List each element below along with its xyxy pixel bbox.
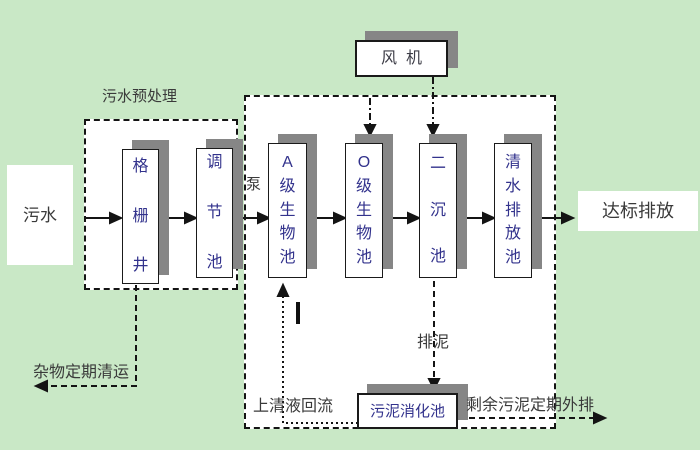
tank-char: 二 — [430, 156, 446, 172]
tank-char: A — [282, 155, 293, 171]
label-sludge-drain: 排泥 — [417, 335, 449, 351]
tank-char: 池 — [206, 255, 222, 271]
node-grid-well: 格栅井 — [122, 149, 159, 284]
node-fan: 风机 — [355, 40, 448, 77]
tank-char: 池 — [279, 250, 295, 266]
node-digester: 污泥消化池 — [357, 393, 458, 429]
node-tank-o: O级生物池 — [345, 143, 383, 278]
node-tank-a: A级生物池 — [268, 143, 307, 278]
debris-arrowhead — [36, 381, 47, 391]
tank-char: 级 — [279, 179, 295, 195]
tank-char: 清 — [505, 155, 521, 171]
excess-sludge-arrowhead — [594, 413, 605, 423]
tank-char: 生 — [279, 203, 295, 219]
tank-char: 排 — [505, 203, 521, 219]
node-grid-well-label: 格栅井 — [122, 149, 159, 284]
tank-char: 沉 — [430, 203, 446, 219]
node-regulating-tank-label: 调节池 — [196, 148, 233, 278]
node-influent-label: 污水 — [23, 207, 57, 224]
tank-char: 栅 — [132, 209, 148, 225]
node-tank-o-label: O级生物池 — [345, 143, 383, 278]
label-debris-removal: 杂物定期清运 — [33, 365, 129, 381]
tank-char: 物 — [356, 226, 372, 242]
tank-char: 水 — [505, 179, 521, 195]
tank-char: 节 — [206, 205, 222, 221]
node-discharge: 达标排放 — [578, 191, 698, 231]
node-clearwater-tank: 清水排放池 — [494, 143, 532, 278]
node-secondary-clarifier-label: 二沉池 — [419, 143, 457, 278]
tank-char: 生 — [356, 203, 372, 219]
tank-char: 格 — [132, 159, 148, 175]
caret-mark — [296, 302, 300, 324]
node-clearwater-tank-label: 清水排放池 — [494, 143, 532, 278]
node-tank-a-label: A级生物池 — [268, 143, 307, 278]
tank-char: 池 — [356, 250, 372, 266]
node-influent: 污水 — [7, 165, 73, 265]
node-secondary-clarifier: 二沉池 — [419, 143, 457, 278]
label-pretreatment: 污水预处理 — [102, 89, 177, 104]
tank-char: 池 — [505, 250, 521, 266]
node-digester-label: 污泥消化池 — [357, 393, 458, 429]
tank-char: 物 — [279, 226, 295, 242]
tank-char: 井 — [132, 258, 148, 274]
label-pump: 泵 — [246, 177, 261, 192]
tank-char: O — [358, 155, 370, 171]
diagram-canvas: 污水 达标排放 风机 格栅井 调节池 A级生物池 O级生物池 二沉池 清水排放池… — [0, 0, 700, 450]
tank-char: 级 — [356, 179, 372, 195]
tank-char: 调 — [206, 155, 222, 171]
node-discharge-label: 达标排放 — [602, 202, 674, 220]
node-fan-label: 风机 — [355, 40, 448, 77]
tank-char: 放 — [505, 226, 521, 242]
tank-char: 池 — [430, 249, 446, 265]
node-regulating-tank: 调节池 — [196, 148, 233, 278]
label-excess-sludge: 剩余污泥定期外排 — [466, 398, 594, 414]
label-supernatant-return: 上清液回流 — [253, 399, 333, 415]
